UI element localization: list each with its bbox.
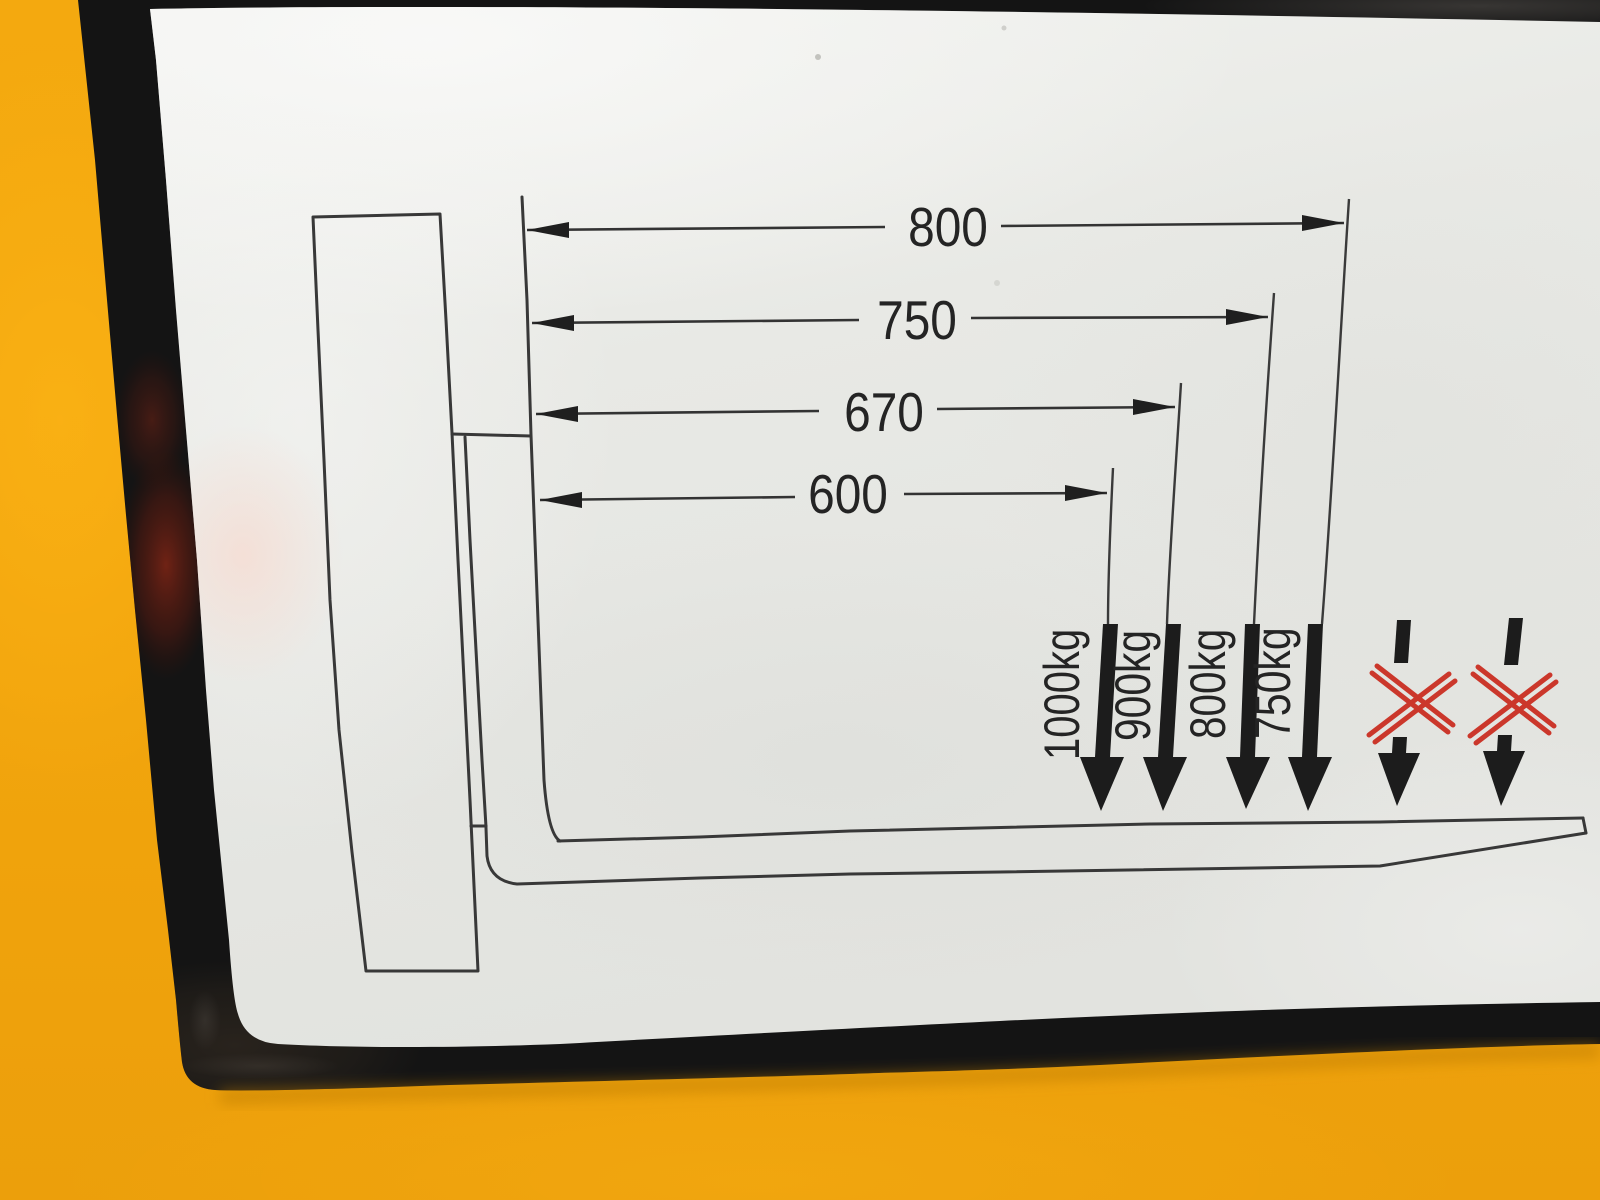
svg-text:1000kg: 1000kg [1034,629,1090,760]
svg-text:900kg: 900kg [1105,630,1161,741]
svg-text:800kg: 800kg [1180,629,1236,739]
svg-text:670: 670 [844,381,924,443]
svg-text:600: 600 [808,463,888,525]
svg-text:750: 750 [877,289,957,351]
svg-text:750kg: 750kg [1245,627,1301,739]
svg-text:800: 800 [908,196,988,258]
